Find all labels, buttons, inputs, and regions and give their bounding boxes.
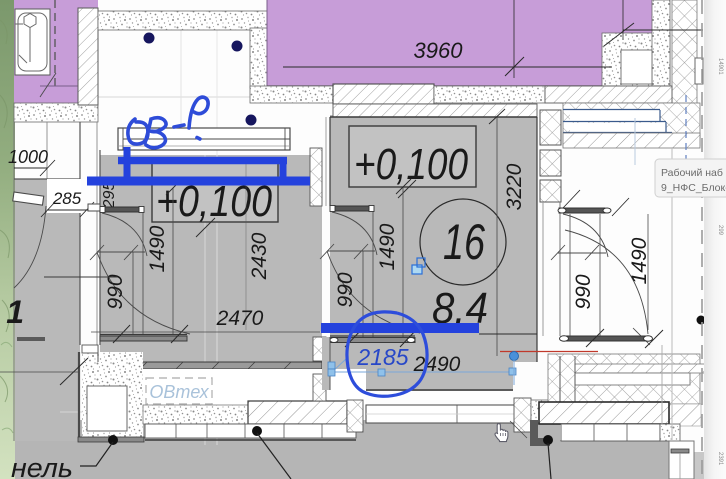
svg-text:299: 299 (717, 225, 723, 236)
svg-text:нель: нель (11, 453, 73, 479)
svg-text:ОВтех: ОВтех (149, 382, 209, 402)
svg-text:9_НФС_Блок-: 9_НФС_Блок- (661, 182, 726, 194)
svg-text:285: 285 (52, 189, 82, 208)
svg-text:1490: 1490 (376, 223, 399, 270)
svg-text:1490: 1490 (146, 225, 169, 272)
svg-text:990: 990 (334, 272, 357, 307)
svg-text:990: 990 (572, 274, 595, 309)
svg-text:3220: 3220 (503, 163, 526, 210)
svg-text:+0,100: +0,100 (354, 140, 468, 189)
svg-text:2470: 2470 (216, 307, 264, 330)
svg-text:2391: 2391 (717, 452, 723, 466)
svg-text:3960: 3960 (414, 38, 464, 63)
svg-text:295: 295 (101, 182, 118, 210)
svg-text:1: 1 (6, 294, 24, 330)
svg-text:990: 990 (104, 274, 127, 309)
svg-text:1000: 1000 (8, 147, 48, 167)
svg-text:Рабочий наб: Рабочий наб (661, 167, 723, 179)
svg-text:14901: 14901 (717, 58, 723, 75)
svg-text:1490: 1490 (628, 237, 651, 284)
svg-text:16: 16 (443, 214, 485, 270)
svg-text:2430: 2430 (248, 232, 271, 280)
svg-text:2490: 2490 (413, 353, 461, 376)
svg-text:2185: 2185 (356, 344, 408, 370)
